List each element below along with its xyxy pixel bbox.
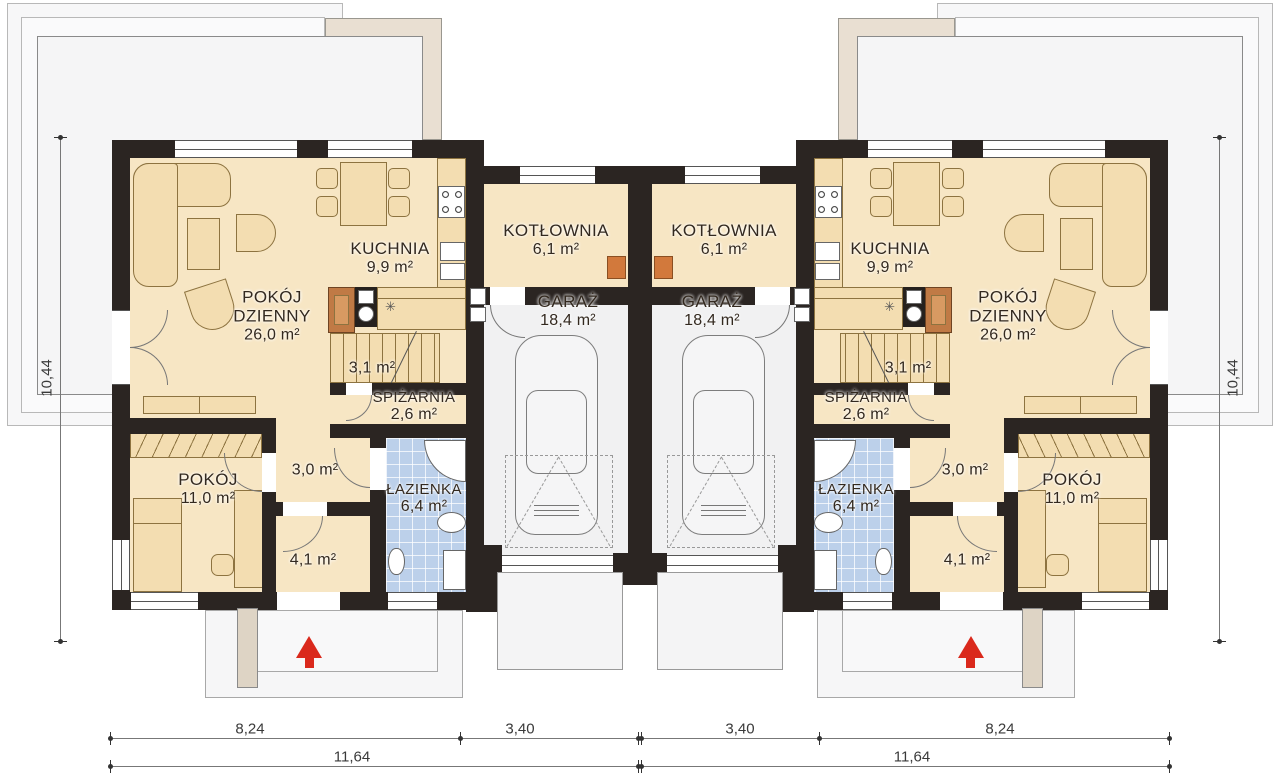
bedroom-side-window <box>1150 540 1168 590</box>
room-name: KUCHNIA <box>850 239 929 258</box>
bedroom-door-opening <box>1004 453 1018 492</box>
room-label-garage: GARAŻ18,4 m² <box>682 292 743 330</box>
dimension-line-total <box>110 766 638 767</box>
room-label-living: POKÓJDZIENNY26,0 m² <box>969 288 1046 345</box>
room-area: 6,1 m² <box>671 240 777 259</box>
room-label-kitchen: KUCHNIA9,9 m² <box>350 239 429 277</box>
dimension-line-total <box>642 766 1170 767</box>
tech-sink <box>906 290 922 304</box>
wall <box>1004 418 1168 434</box>
dimension-tick <box>1167 764 1172 769</box>
room-name: DZIENNY <box>969 307 1046 326</box>
room-name: DZIENNY <box>233 307 310 326</box>
entrance-arrow-icon <box>305 656 314 668</box>
washbasin <box>814 512 843 533</box>
room-area: 26,0 m² <box>233 326 310 345</box>
unit-right: ✳ <box>640 0 1280 775</box>
kitchen-sink <box>815 242 840 261</box>
armchair <box>236 214 276 252</box>
dimension-tick <box>458 736 463 741</box>
wall <box>628 166 640 585</box>
wall <box>330 424 466 438</box>
entrance-door-opening <box>940 592 1003 610</box>
boiler-unit <box>654 256 673 279</box>
pantry-door-opening <box>908 383 934 395</box>
tech-sink <box>358 290 374 304</box>
porch-outline-inner <box>842 610 1043 672</box>
kitchen-sink <box>440 242 465 261</box>
utility-meter <box>470 288 486 305</box>
dining-chair <box>316 196 338 217</box>
garage-door-clearance <box>505 455 613 548</box>
room-area: 3,0 m² <box>942 461 989 480</box>
room-area: 3,1 m² <box>349 360 396 377</box>
bathroom-door-opening <box>894 448 910 490</box>
terrace-door-opening <box>112 310 130 385</box>
corner-sofa <box>133 163 178 287</box>
living-room-window <box>983 140 1105 158</box>
dining-chair <box>388 168 410 189</box>
entrance-door-opening <box>277 592 340 610</box>
room-name: POKÓJ <box>1042 470 1102 489</box>
dining-chair <box>870 196 892 217</box>
room-label-garage: GARAŻ18,4 m² <box>538 292 599 330</box>
room-name: POKÓJ <box>233 288 310 307</box>
desk-chair <box>1046 554 1069 576</box>
wall <box>112 418 276 434</box>
garage-door-clearance <box>667 455 775 548</box>
room-label-bedroom: POKÓJ11,0 m² <box>1042 470 1102 508</box>
dimension-label: 8,24 <box>985 721 1014 738</box>
room-area: 18,4 m² <box>682 311 743 330</box>
room-label-stairs: 3,1 m² <box>349 360 396 377</box>
desk-chair <box>211 554 234 576</box>
wall <box>466 140 484 592</box>
porch-column <box>1022 608 1043 688</box>
terrace-door-opening <box>1150 310 1168 385</box>
hall-door-opening <box>283 502 327 516</box>
coffee-table <box>187 218 220 270</box>
dimension-label: 3,40 <box>725 721 754 738</box>
dimension-tick <box>639 764 644 769</box>
dimension-tick <box>108 736 113 741</box>
dimension-label: 11,64 <box>894 749 930 766</box>
armchair <box>1004 214 1044 252</box>
bed <box>1098 498 1147 592</box>
room-name: SPIŻARNIA <box>373 389 456 406</box>
dining-table <box>340 162 387 226</box>
room-area: 9,9 m² <box>350 258 429 277</box>
room-name: ŁAZIENKA <box>818 481 894 498</box>
bathroom-door-opening <box>370 448 386 490</box>
wall <box>640 166 652 585</box>
dimension-label: 8,24 <box>235 721 264 738</box>
room-label-kitchen: KUCHNIA9,9 m² <box>850 239 929 277</box>
room-label-pantry: SPIŻARNIA2,6 m² <box>825 389 908 423</box>
kitchen-sink <box>440 263 465 280</box>
porch-column <box>237 608 258 688</box>
vent-icon: ✳ <box>884 299 895 315</box>
room-area: 26,0 m² <box>969 326 1046 345</box>
utility-meter <box>794 288 810 305</box>
room-name: POKÓJ <box>178 470 238 489</box>
utility-meter <box>470 307 486 322</box>
dimension-label: 3,40 <box>505 721 534 738</box>
dimension-tick <box>108 764 113 769</box>
room-label-vestibule: 4,1 m² <box>290 551 337 570</box>
utility-meter <box>794 307 810 322</box>
room-area: 2,6 m² <box>373 406 456 423</box>
kitchen-window <box>868 140 952 158</box>
room-label-bathroom: ŁAZIENKA6,4 m² <box>818 481 894 515</box>
hall-door-opening <box>953 502 997 516</box>
desk <box>234 490 263 588</box>
pantry-door-opening <box>346 383 372 395</box>
room-name: POKÓJ <box>969 288 1046 307</box>
dimension-line-bottom <box>110 738 638 739</box>
dining-chair <box>942 168 964 189</box>
sideboard <box>1024 396 1137 414</box>
room-area: 3,0 m² <box>292 461 339 480</box>
room-label-bathroom: ŁAZIENKA6,4 m² <box>386 481 462 515</box>
chimney-inner <box>931 295 946 325</box>
dimension-line-bottom <box>642 738 1170 739</box>
driveway <box>657 572 783 670</box>
room-name: ŁAZIENKA <box>386 481 462 498</box>
boiler-garage-door-opening <box>755 287 790 305</box>
dimension-line-vertical <box>60 137 61 642</box>
room-name: KOTŁOWNIA <box>671 221 777 240</box>
dining-chair <box>870 168 892 189</box>
boiler-garage-door-opening <box>490 287 525 305</box>
bathroom-window <box>388 592 437 610</box>
room-label-bedroom: POKÓJ11,0 m² <box>178 470 238 508</box>
unit-left: ✳ <box>0 0 640 775</box>
washing-machine <box>814 550 837 590</box>
dining-chair <box>388 196 410 217</box>
boiler-room-window <box>685 166 760 184</box>
dimension-tick <box>639 736 644 741</box>
porch-outline-inner <box>237 610 438 672</box>
floor-plan: ✳ <box>0 0 1280 775</box>
room-label-pantry: SPIŻARNIA2,6 m² <box>373 389 456 423</box>
room-area: 6,4 m² <box>386 498 462 515</box>
room-name: SPIŻARNIA <box>825 389 908 406</box>
dimension-label: 11,64 <box>334 749 370 766</box>
boiler-room-window <box>520 166 595 184</box>
room-label-hall: 3,0 m² <box>292 461 339 480</box>
tech-burner <box>358 306 374 322</box>
room-area: 3,1 m² <box>885 360 932 377</box>
room-label-vestibule: 4,1 m² <box>944 551 991 570</box>
entrance-arrow-icon <box>958 636 984 658</box>
room-name: GARAŻ <box>682 292 743 311</box>
room-area: 4,1 m² <box>290 551 337 570</box>
room-label-stairs: 3,1 m² <box>885 360 932 377</box>
room-label-boiler: KOTŁOWNIA6,1 m² <box>503 221 609 259</box>
bathroom-window <box>843 592 892 610</box>
room-label-hall: 3,0 m² <box>942 461 989 480</box>
dimension-label: 10,44 <box>1225 359 1242 397</box>
dining-chair <box>316 168 338 189</box>
corner-sofa <box>1102 163 1147 287</box>
dimension-tick <box>1217 639 1222 644</box>
bedroom-window <box>1082 592 1149 610</box>
wall <box>778 545 814 612</box>
vent-icon: ✳ <box>385 299 396 315</box>
room-area: 9,9 m² <box>850 258 929 277</box>
dimension-line-vertical <box>1219 137 1220 642</box>
entrance-arrow-icon <box>966 656 975 668</box>
living-room-window <box>175 140 297 158</box>
room-area: 11,0 m² <box>1042 489 1102 508</box>
bedroom-window <box>131 592 198 610</box>
dining-table <box>893 162 940 226</box>
kitchen-window <box>328 140 412 158</box>
room-area: 2,6 m² <box>825 406 908 423</box>
bedroom-side-window <box>112 540 130 590</box>
dimension-tick <box>58 135 63 140</box>
toilet <box>875 548 892 575</box>
dimension-label: 10,44 <box>39 359 56 397</box>
room-area: 4,1 m² <box>944 551 991 570</box>
dining-chair <box>942 196 964 217</box>
wall <box>814 424 950 438</box>
chimney-inner <box>334 295 349 325</box>
room-area: 11,0 m² <box>178 489 238 508</box>
tech-burner <box>906 306 922 322</box>
stove-icon <box>815 186 842 218</box>
dimension-tick <box>1217 135 1222 140</box>
dimension-tick <box>817 736 822 741</box>
stove-icon <box>438 186 465 218</box>
room-name: GARAŻ <box>538 292 599 311</box>
bedroom-door-opening <box>262 453 276 492</box>
room-area: 6,4 m² <box>818 498 894 515</box>
kitchen-sink <box>815 263 840 280</box>
entrance-arrow-icon <box>296 636 322 658</box>
bed <box>133 498 182 592</box>
room-label-living: POKÓJDZIENNY26,0 m² <box>233 288 310 345</box>
room-name: KUCHNIA <box>350 239 429 258</box>
wall <box>796 140 814 592</box>
boiler-unit <box>607 256 626 279</box>
coffee-table <box>1060 218 1093 270</box>
dimension-tick <box>58 639 63 644</box>
washbasin <box>437 512 466 533</box>
washing-machine <box>443 550 466 590</box>
sideboard <box>143 396 256 414</box>
toilet <box>388 548 405 575</box>
room-area: 6,1 m² <box>503 240 609 259</box>
dimension-tick <box>1167 736 1172 741</box>
room-area: 18,4 m² <box>538 311 599 330</box>
room-label-boiler: KOTŁOWNIA6,1 m² <box>671 221 777 259</box>
room-name: KOTŁOWNIA <box>503 221 609 240</box>
driveway <box>497 572 623 670</box>
